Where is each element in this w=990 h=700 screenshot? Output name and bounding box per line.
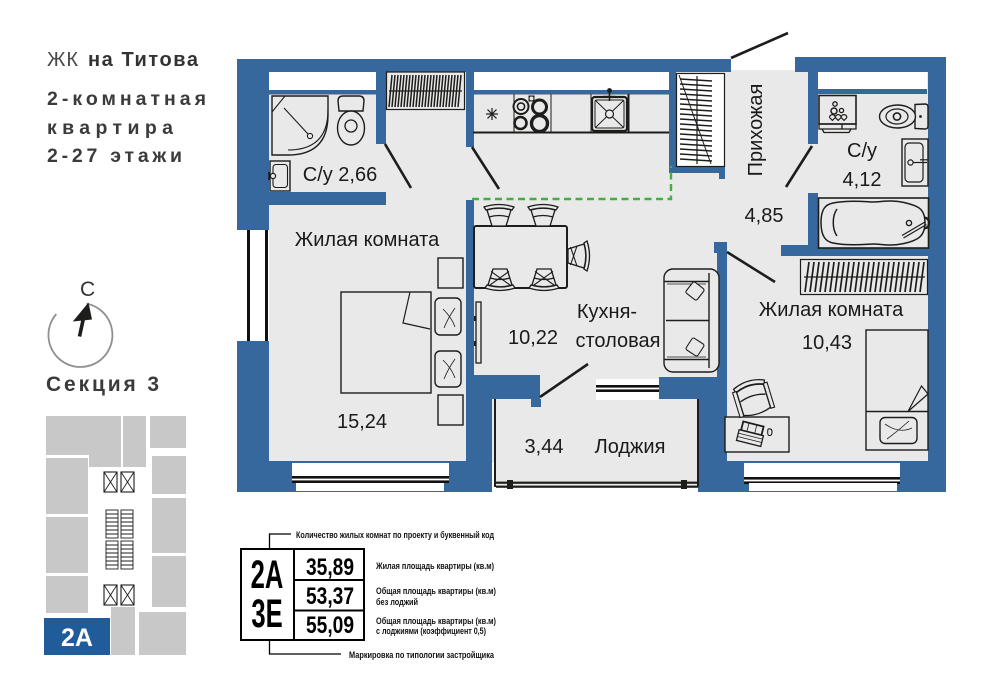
svg-text:10,43: 10,43 [802, 332, 852, 354]
svg-text:без лоджий: без лоджий [376, 597, 418, 608]
svg-text:3,44: 3,44 [525, 436, 564, 458]
svg-text:4,85: 4,85 [745, 205, 784, 227]
svg-text:Кухня-: Кухня- [577, 301, 637, 323]
svg-text:Лоджия: Лоджия [595, 436, 666, 458]
svg-text:Маркировка по типологии застро: Маркировка по типологии застройщика [349, 650, 495, 661]
svg-text:2-27 этажи: 2-27 этажи [47, 145, 182, 167]
svg-text:35,89: 35,89 [306, 553, 354, 581]
svg-text:Жилая комната: Жилая комната [295, 229, 440, 251]
svg-text:Жилая комната: Жилая комната [759, 299, 904, 321]
svg-text:55,09: 55,09 [306, 611, 354, 639]
svg-text:на Титова: на Титова [88, 49, 199, 71]
svg-text:10,22: 10,22 [508, 327, 558, 349]
svg-text:Прихожая: Прихожая [745, 84, 767, 177]
svg-text:с лоджиями (коэффициент 0,5): с лоджиями (коэффициент 0,5) [376, 626, 486, 637]
svg-text:столовая: столовая [576, 330, 661, 352]
svg-text:С: С [80, 278, 95, 301]
svg-text:С/у 2,66: С/у 2,66 [303, 164, 377, 186]
svg-text:ЖК: ЖК [47, 49, 78, 71]
svg-text:15,24: 15,24 [337, 411, 387, 433]
svg-text:Общая площадь квартиры (кв.м): Общая площадь квартиры (кв.м) [376, 586, 496, 597]
svg-text:Количество жилых комнат по про: Количество жилых комнат по проекту и бук… [296, 530, 494, 541]
svg-text:С/у: С/у [847, 140, 877, 162]
svg-text:4,12: 4,12 [843, 169, 882, 191]
svg-text:2А: 2А [251, 553, 284, 597]
svg-text:Жилая площадь квартиры (кв.м): Жилая площадь квартиры (кв.м) [375, 561, 494, 572]
svg-text:53,37: 53,37 [306, 582, 354, 610]
svg-text:2А: 2А [61, 624, 93, 652]
svg-text:3Е: 3Е [251, 592, 282, 636]
